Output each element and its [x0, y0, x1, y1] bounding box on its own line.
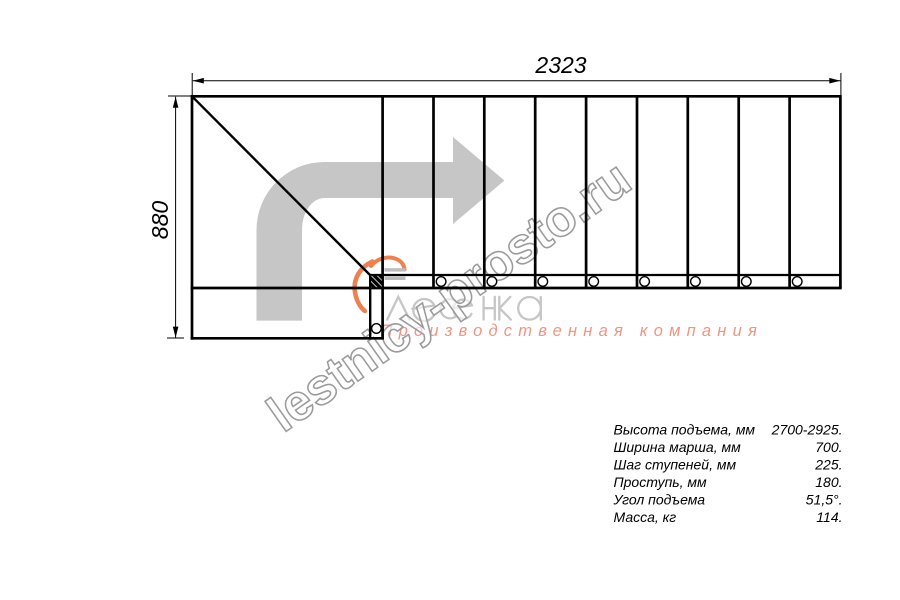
svg-text:Ширина марша, мм: Ширина марша, мм — [614, 439, 742, 455]
svg-text:51,5°.: 51,5°. — [806, 491, 843, 507]
svg-text:Масса, кг: Масса, кг — [614, 509, 677, 525]
svg-text:2700-2925.: 2700-2925. — [771, 421, 843, 437]
svg-text:880: 880 — [147, 201, 173, 240]
svg-text:Высота подъема, мм: Высота подъема, мм — [614, 421, 756, 437]
svg-text:Угол подъема: Угол подъема — [613, 491, 706, 507]
svg-text:114.: 114. — [816, 509, 842, 525]
svg-text:225.: 225. — [814, 456, 842, 472]
svg-text:Шаг ступеней, мм: Шаг ступеней, мм — [614, 456, 737, 472]
svg-text:700.: 700. — [815, 439, 842, 455]
svg-text:180.: 180. — [815, 474, 842, 490]
svg-text:Проступь, мм: Проступь, мм — [614, 474, 708, 490]
svg-text:2323: 2323 — [534, 52, 586, 78]
